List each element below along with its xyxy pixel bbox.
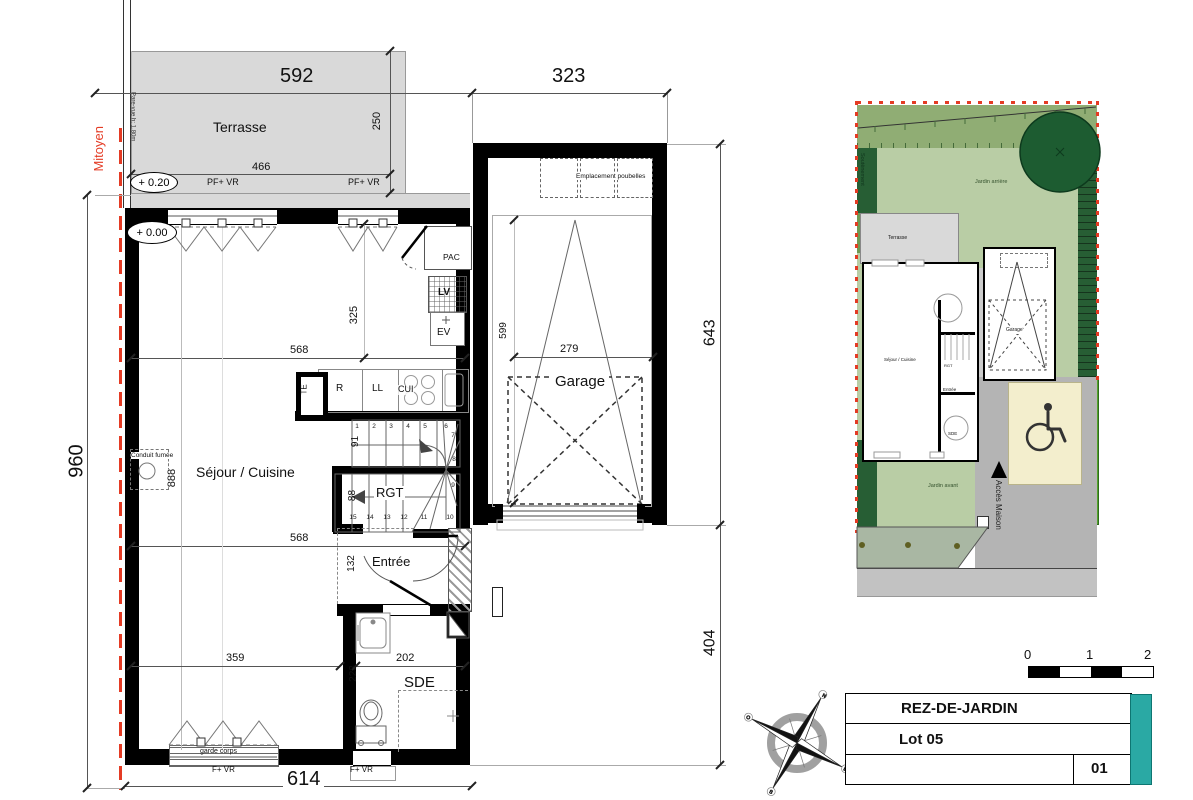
room-entree: Entrée (372, 555, 410, 569)
dim-568a: 568 (288, 344, 310, 356)
fixture-ll: LL (372, 383, 383, 394)
dim-132: 132 (346, 555, 357, 572)
dim-568b: 568 (288, 532, 310, 544)
room-rgt: RGT (374, 486, 405, 500)
room-sde: SDE (404, 675, 435, 692)
site-street (857, 568, 1097, 597)
door-sde-opening (383, 605, 430, 615)
ref-garage-top (667, 144, 726, 145)
site-terrace-mini (860, 213, 959, 264)
window-top-1 (168, 209, 277, 225)
vanity (356, 613, 390, 653)
title-row-divider-2 (846, 754, 1131, 755)
scale-bar (1028, 666, 1154, 678)
mitoyen-label: Mitoyen (92, 126, 106, 172)
scale-1: 1 (1086, 648, 1093, 662)
dim-325: 325 (348, 306, 360, 324)
dim-359-line (131, 666, 340, 667)
fixture-conduit: Conduit fumée (131, 452, 173, 459)
guide-667 (667, 93, 668, 143)
ref-garage-bottom (667, 525, 726, 526)
dim-592: 592 (280, 65, 313, 87)
title-block: REZ-DE-JARDIN Lot 05 01 (845, 693, 1132, 785)
stair-8: 8 (448, 456, 460, 463)
stair-14: 14 (364, 514, 376, 521)
site-sde: SDE (948, 432, 957, 437)
bin-bay-1 (540, 158, 578, 198)
title-cell-divider (1073, 754, 1074, 784)
entry-zone-dash-v (337, 528, 338, 604)
fixture-cui: CUI (398, 385, 414, 395)
site-jardin-avant: Jardin avant (928, 483, 958, 489)
site-parking-handicap (1008, 382, 1082, 485)
site-band-hatch (857, 143, 1097, 148)
mitoyen-boundary-line (119, 128, 122, 790)
scale-2: 2 (1144, 648, 1151, 662)
counter-divider-3 (442, 369, 443, 411)
compass-o: O (745, 714, 751, 721)
dim-643: 643 (702, 319, 720, 346)
sde-zone-dash-v (398, 690, 399, 752)
ref-terrace-level (95, 195, 131, 196)
site-boundary-left (855, 101, 858, 533)
title-sheet: 01 (1091, 761, 1108, 778)
window-label-fvr-1: F+ VR (212, 766, 235, 775)
compass-n: N (821, 693, 827, 700)
dim-250-line (390, 51, 391, 193)
site-top-band (857, 105, 1097, 148)
dim-888: 888 (166, 469, 178, 487)
dim-404-line (720, 525, 721, 765)
dim-202: 202 (396, 652, 414, 664)
site-meter-box (977, 516, 989, 529)
garde-corps-label: garde corps (200, 748, 237, 756)
dim-250: 250 (371, 112, 383, 130)
site-boundary-right (1096, 101, 1099, 381)
dim-643-line (720, 144, 721, 525)
fixture-te: TE (301, 384, 310, 394)
dim-960: 960 (66, 444, 88, 477)
dim-279: 279 (558, 343, 580, 355)
acces-arrow (991, 461, 1007, 478)
stair-7: 7 (447, 432, 459, 439)
stair-9: 9 (447, 482, 459, 489)
fixture-poubelles: Emplacement poubelles (576, 173, 645, 180)
pac-unit (424, 226, 472, 270)
site-terrasse: Terrasse (888, 236, 907, 242)
dim-91: 91 (350, 436, 361, 447)
stair-3: 3 (385, 423, 397, 430)
title-row-divider-1 (846, 723, 1131, 724)
fixture-lv: LV (438, 287, 450, 298)
dim-599-line (514, 220, 515, 503)
wall-entry-b (413, 529, 448, 538)
site-rgt: RGT (944, 364, 952, 368)
site-soutenement: Soutènement (859, 153, 865, 186)
title-teal-stripe (1130, 694, 1152, 785)
stair-12: 12 (398, 514, 410, 521)
ref-center-line (222, 224, 223, 750)
stair-10: 10 (444, 514, 456, 521)
garage-wall-top (473, 143, 667, 158)
dim-359: 359 (226, 652, 244, 664)
compass-s: S (768, 789, 774, 796)
site-house-mini (862, 262, 979, 462)
site-house-wall-h1 (938, 332, 975, 335)
site-boundary-top (857, 101, 1099, 104)
dim-202-line (356, 666, 465, 667)
dim-325-line (364, 224, 365, 358)
stair-6: 6 (440, 423, 452, 430)
dim-404: 404 (702, 629, 720, 656)
window-top-2 (338, 209, 398, 225)
dim-279-line (514, 357, 653, 358)
te-box (296, 372, 328, 420)
dim-88: 88 (347, 490, 358, 501)
fixture-pac: PAC (443, 253, 460, 262)
floor-plan-sheet: N S O E 592 323 466 250 960 643 404 568 … (0, 0, 1193, 800)
title-level: REZ-DE-JARDIN (901, 701, 1018, 718)
stair-11: 11 (418, 514, 430, 521)
dim-466: 466 (252, 161, 270, 173)
wall-stair-stub (332, 466, 342, 532)
dim-599: 599 (498, 322, 509, 339)
dim-614: 614 (283, 768, 324, 790)
pare-vue-label: Pare-vue h: 1.80m (129, 92, 136, 141)
level-terrace-value: + 0.20 (139, 177, 170, 189)
site-house-wall-v (938, 300, 941, 458)
sidewalk (857, 527, 988, 568)
stair-13: 13 (381, 514, 393, 521)
level-ground: + 0.00 (127, 221, 177, 244)
entry-porch-hatch (448, 528, 472, 612)
dim-323-line (472, 93, 667, 94)
level-terrace: + 0.20 (130, 172, 178, 193)
guide-131 (131, 51, 132, 93)
fixture-ev: EV (437, 327, 450, 338)
room-garage: Garage (551, 374, 609, 391)
site-bins-mini (1000, 253, 1048, 268)
dim-223: 223 (348, 665, 359, 682)
window-label-fvr-2: F+ VR (350, 766, 373, 775)
site-jardin-arriere: Jardin arrière (975, 179, 1007, 185)
ref-bottom-left (87, 788, 125, 789)
scale-0: 0 (1024, 648, 1031, 662)
door-bottom-sde (353, 750, 391, 766)
title-lot: Lot 05 (899, 732, 943, 749)
site-entree: Entrée (943, 388, 956, 393)
exterior-step-marker (492, 587, 503, 617)
garage-wall-right (652, 143, 667, 525)
garage-inner-outline (492, 215, 652, 507)
window-label-pfvr-1: PF+ VR (207, 178, 239, 188)
garage-wall-left (473, 143, 488, 525)
dim-323: 323 (552, 65, 585, 87)
level-ground-value: + 0.00 (137, 227, 168, 239)
counter-divider-1 (362, 369, 363, 411)
window-label-pfvr-2: PF+ VR (348, 178, 380, 188)
site-acces-maison: Accès Maison (993, 480, 1002, 530)
guide-472 (472, 93, 473, 143)
stair-5: 5 (419, 423, 431, 430)
ref-house-bottom (470, 765, 726, 766)
wall-stair-mid (335, 466, 460, 474)
dim-592-line (95, 93, 472, 94)
site-garage: Garage (1006, 328, 1023, 334)
site-sejour: Séjour / Cuisine (884, 358, 916, 363)
room-sejour: Séjour / Cuisine (196, 465, 295, 480)
entry-zone-dash-h (337, 528, 414, 529)
fixture-r: R (336, 383, 343, 394)
stair-1: 1 (351, 423, 363, 430)
room-terrasse: Terrasse (213, 120, 267, 135)
stair-2: 2 (368, 423, 380, 430)
stair-15: 15 (347, 514, 359, 521)
wall-right-lower (456, 610, 470, 765)
dim-960-line (87, 195, 88, 788)
wc (356, 700, 386, 746)
site-hedge-right (1078, 140, 1097, 377)
stair-4: 4 (402, 423, 414, 430)
ref-888-line (181, 224, 182, 750)
